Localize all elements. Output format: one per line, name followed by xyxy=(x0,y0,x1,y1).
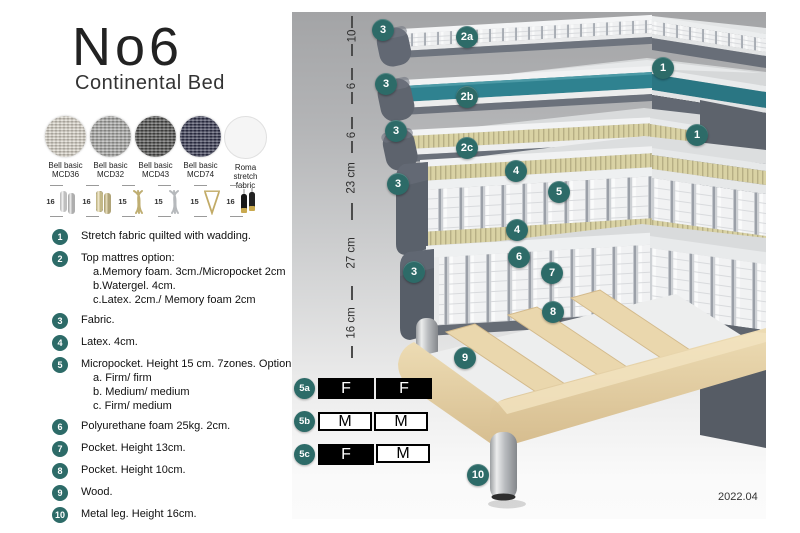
measure-dash xyxy=(86,185,99,186)
fabric-code: MCD43 xyxy=(138,170,172,179)
diagram-badge: 4 xyxy=(506,219,528,241)
item-text: Fabric. xyxy=(81,313,115,327)
item-sub-option: a. Firm/ firm xyxy=(93,371,294,385)
firmness-cell: F xyxy=(318,444,374,465)
front-leg xyxy=(490,432,517,500)
measure-dash xyxy=(122,216,135,217)
diagram-panel: 10 6 6 23 cm 27 cm 16 cm 3 2a 1 3 2b 1 3… xyxy=(292,12,766,519)
item-text: Wood. xyxy=(81,485,113,499)
firmness-cell: M xyxy=(318,412,372,431)
leg-option: 16 xyxy=(225,184,261,218)
leg-height: 15 xyxy=(118,197,126,206)
leg-option: 15 xyxy=(117,184,153,218)
item-number-badge: 2 xyxy=(52,251,68,267)
fabric-swatch: Romastretch fabric xyxy=(223,116,268,190)
item-text: Latex. 4cm. xyxy=(81,335,138,349)
dimension-10: 10 xyxy=(337,16,367,56)
firmness-cell: F xyxy=(318,378,374,399)
measure-dash xyxy=(50,216,63,217)
diagram-badge: 6 xyxy=(508,246,530,268)
leg-height: 16 xyxy=(46,197,54,206)
measure-dash xyxy=(194,216,207,217)
item-sub-option: a.Memory foam. 3cm./Micropocket 2cm xyxy=(93,265,286,279)
firmness-cell: M xyxy=(376,444,430,463)
item-sub-option: c.Latex. 2cm./ Memory foam 2cm xyxy=(93,293,286,307)
fabric-name: Bell basic xyxy=(93,161,127,170)
fabric-swatch: Bell basicMCD74 xyxy=(178,116,223,190)
item-text: Polyurethane foam 25kg. 2cm. xyxy=(81,419,230,433)
firmness-bar: M M xyxy=(318,412,428,431)
fabric-name: Bell basic xyxy=(48,161,82,170)
item-number-badge: 4 xyxy=(52,335,68,351)
fabric-swatch-circle xyxy=(135,116,176,157)
fabric-swatch: Bell basicMCD32 xyxy=(88,116,133,190)
firmness-row-5a: 5a F F xyxy=(294,378,432,399)
dimension-tick xyxy=(351,68,353,80)
measure-dash xyxy=(158,216,171,217)
list-item: 4 Latex. 4cm. xyxy=(52,335,300,351)
measure-dash xyxy=(86,216,99,217)
list-item: 3 Fabric. xyxy=(52,313,300,329)
diagram-badge: 3 xyxy=(403,261,425,283)
leg-option: 16 xyxy=(45,184,81,218)
fabric-swatch-circle xyxy=(224,116,267,159)
diagram-badge: 2c xyxy=(456,137,478,159)
list-item: 8 Pocket. Height 10cm. xyxy=(52,463,300,479)
list-item: 6 Polyurethane foam 25kg. 2cm. xyxy=(52,419,300,435)
list-item: 9 Wood. xyxy=(52,485,300,501)
firmness-row-5c: 5c F M xyxy=(294,444,430,465)
item-number-badge: 5 xyxy=(52,357,68,373)
dimension-tick xyxy=(351,208,353,220)
item-sub-option: c. Firm/ medium xyxy=(93,399,294,413)
fabric-swatch: Bell basicMCD43 xyxy=(133,116,178,190)
cylinder-black-gold-leg-icon xyxy=(236,188,260,215)
fabric-swatch-list: Bell basicMCD36 Bell basicMCD32 Bell bas… xyxy=(43,116,269,190)
fabric-code: MCD36 xyxy=(48,170,82,179)
firmness-cell: M xyxy=(374,412,428,431)
dimension-6a: 6 xyxy=(337,68,367,104)
diagram-badge: 9 xyxy=(454,347,476,369)
diagram-badge: 10 xyxy=(467,464,489,486)
measure-dash xyxy=(122,185,135,186)
product-sheet: No6 Continental Bed Bell basicMCD36 Bell… xyxy=(0,0,800,533)
item-sub-option: b.Watergel. 4cm. xyxy=(93,279,286,293)
cylinder-silver-leg-icon xyxy=(56,188,80,215)
leg-options-list: 16 16 15 15 15 xyxy=(45,184,263,218)
fabric-swatch-circle xyxy=(45,116,86,157)
dimension-tick xyxy=(351,346,353,358)
firmness-badge: 5c xyxy=(294,444,315,465)
dimension-tick xyxy=(351,141,353,153)
fabric-name: Bell basic xyxy=(183,161,217,170)
fabric-swatch-circle xyxy=(90,116,131,157)
fabric-code: MCD32 xyxy=(93,170,127,179)
item-number-badge: 8 xyxy=(52,463,68,479)
leg-height: 16 xyxy=(82,197,90,206)
item-text: Top mattres option: xyxy=(81,251,286,265)
fabric-code: MCD74 xyxy=(183,170,217,179)
leg-height: 15 xyxy=(190,197,198,206)
diagram-badge: 3 xyxy=(387,173,409,195)
fabric-name: Roma xyxy=(223,163,268,172)
item-sub-option: b. Medium/ medium xyxy=(93,385,294,399)
item-number-badge: 10 xyxy=(52,507,68,523)
leg-height: 16 xyxy=(226,197,234,206)
fabric-name: Bell basic xyxy=(138,161,172,170)
leg-option: 15 xyxy=(189,184,225,218)
diagram-badge: 3 xyxy=(385,120,407,142)
list-item: 10 Metal leg. Height 16cm. xyxy=(52,507,300,523)
diagram-badge: 5 xyxy=(548,181,570,203)
firmness-badge: 5b xyxy=(294,411,315,432)
twisted-gold-leg-icon xyxy=(128,188,152,215)
twisted-silver-leg-icon xyxy=(164,188,188,215)
list-item: 1 Stretch fabric quilted with wadding. xyxy=(52,229,300,245)
version-label: 2022.04 xyxy=(718,491,758,503)
list-item: 5 Micropocket. Height 15 cm. 7zones. Opt… xyxy=(52,357,300,413)
dimension-27cm: 27 cm xyxy=(337,208,367,298)
item-number-badge: 1 xyxy=(52,229,68,245)
diagram-badge: 7 xyxy=(541,262,563,284)
leg-option: 15 xyxy=(153,184,189,218)
fabric-swatch-circle xyxy=(180,116,221,157)
diagram-badge: 1 xyxy=(652,57,674,79)
measure-dash xyxy=(194,185,207,186)
diagram-badge: 4 xyxy=(505,160,527,182)
diagram-badge: 1 xyxy=(686,124,708,146)
dimension-16cm: 16 cm xyxy=(337,288,367,358)
firmness-row-5b: 5b M M xyxy=(294,411,428,432)
item-number-badge: 9 xyxy=(52,485,68,501)
diagram-badge: 2b xyxy=(456,86,478,108)
item-number-badge: 7 xyxy=(52,441,68,457)
diagram-badge: 2a xyxy=(456,26,478,48)
dimension-23cm: 23 cm xyxy=(337,141,367,215)
dimension-tick xyxy=(351,288,353,300)
dimension-tick xyxy=(351,117,353,129)
measure-dash xyxy=(158,185,171,186)
item-text: Pocket. Height 10cm. xyxy=(81,463,186,477)
measure-dash xyxy=(230,185,243,186)
dimension-tick xyxy=(351,44,353,56)
diagram-badge: 3 xyxy=(375,73,397,95)
cylinder-gold-leg-icon xyxy=(92,188,116,215)
item-text: Metal leg. Height 16cm. xyxy=(81,507,197,521)
layer-spec-list: 1 Stretch fabric quilted with wadding. 2… xyxy=(52,229,300,529)
item-text: Micropocket. Height 15 cm. 7zones. Optio… xyxy=(81,357,294,371)
firmness-bar: F M xyxy=(318,444,430,465)
leg-height: 15 xyxy=(154,197,162,206)
item-text: Pocket. Height 13cm. xyxy=(81,441,186,455)
page-title: No6 xyxy=(72,16,183,78)
measure-dash xyxy=(50,185,63,186)
item-number-badge: 6 xyxy=(52,419,68,435)
item-number-badge: 3 xyxy=(52,313,68,329)
measure-dash xyxy=(230,216,243,217)
dimension-tick xyxy=(351,92,353,104)
leg-option: 16 xyxy=(81,184,117,218)
diagram-badge: 8 xyxy=(542,301,564,323)
firmness-badge: 5a xyxy=(294,378,315,399)
topper-2a-layer xyxy=(374,15,766,69)
hairpin-gold-leg-icon xyxy=(200,188,224,215)
fabric-swatch: Bell basicMCD36 xyxy=(43,116,88,190)
dimension-tick xyxy=(351,16,353,28)
list-item: 2 Top mattres option: a.Memory foam. 3cm… xyxy=(52,251,300,307)
firmness-cell: F xyxy=(376,378,432,399)
firmness-bar: F F xyxy=(318,378,432,399)
page-subtitle: Continental Bed xyxy=(75,72,225,95)
list-item: 7 Pocket. Height 13cm. xyxy=(52,441,300,457)
item-text: Stretch fabric quilted with wadding. xyxy=(81,229,251,243)
diagram-badge: 3 xyxy=(372,19,394,41)
